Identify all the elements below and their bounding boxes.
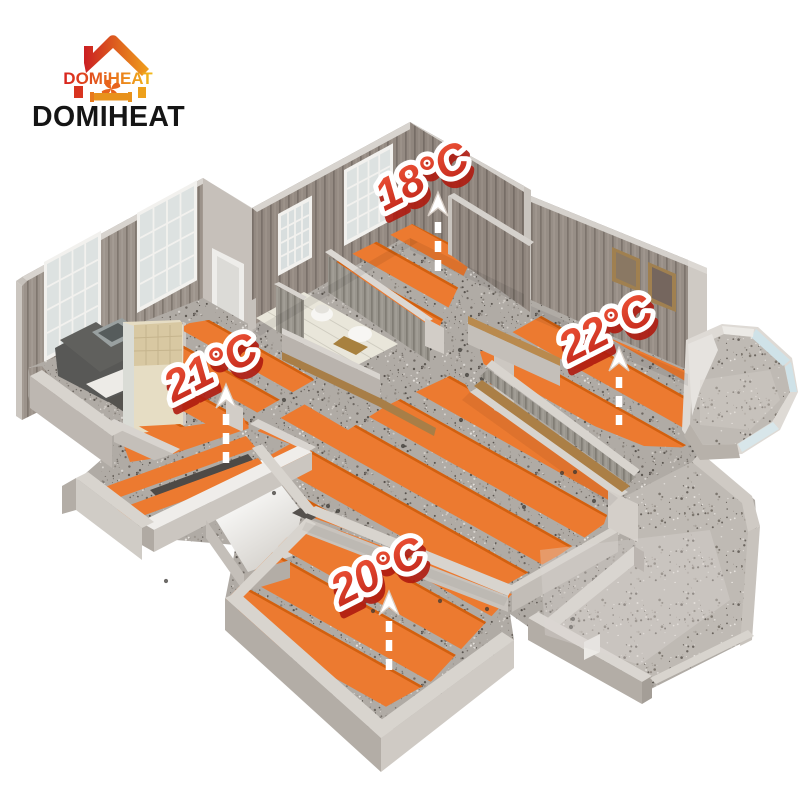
svg-text:DOMIHEAT: DOMIHEAT: [32, 101, 185, 133]
